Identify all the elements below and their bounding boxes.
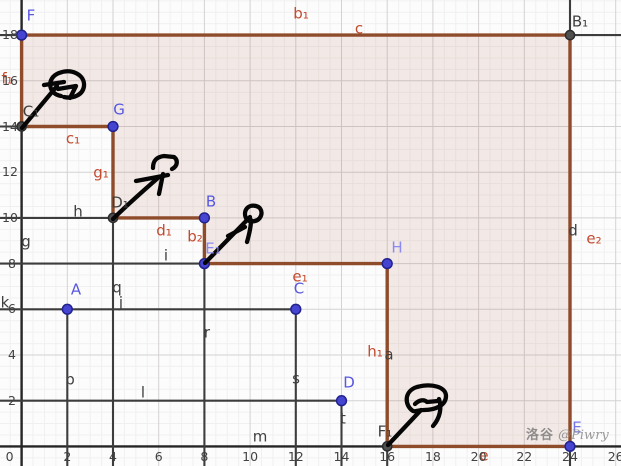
point-b1[interactable] [565, 30, 574, 39]
point-f[interactable] [17, 30, 27, 40]
point-c[interactable] [291, 304, 301, 314]
ink-arrow-4-mark [415, 400, 438, 404]
watermark: 洛谷 @Piwry [526, 429, 609, 442]
point-h[interactable] [382, 259, 392, 269]
ink-arrow-1-bar [44, 82, 64, 85]
point-a[interactable] [62, 304, 72, 314]
watermark-latin: @Piwry [558, 428, 609, 443]
watermark-cjk: 洛谷 [526, 428, 554, 443]
point-b[interactable] [200, 213, 210, 223]
graphics-view[interactable] [0, 0, 621, 466]
geometry-canvas[interactable]: FB₁C₁GD₁BE₁HACDF₁Eb₁cf₁c₁g₁d₁b₂e₁h₁ee₂gh… [0, 0, 621, 466]
point-d[interactable] [337, 396, 347, 406]
point-g[interactable] [108, 122, 118, 132]
